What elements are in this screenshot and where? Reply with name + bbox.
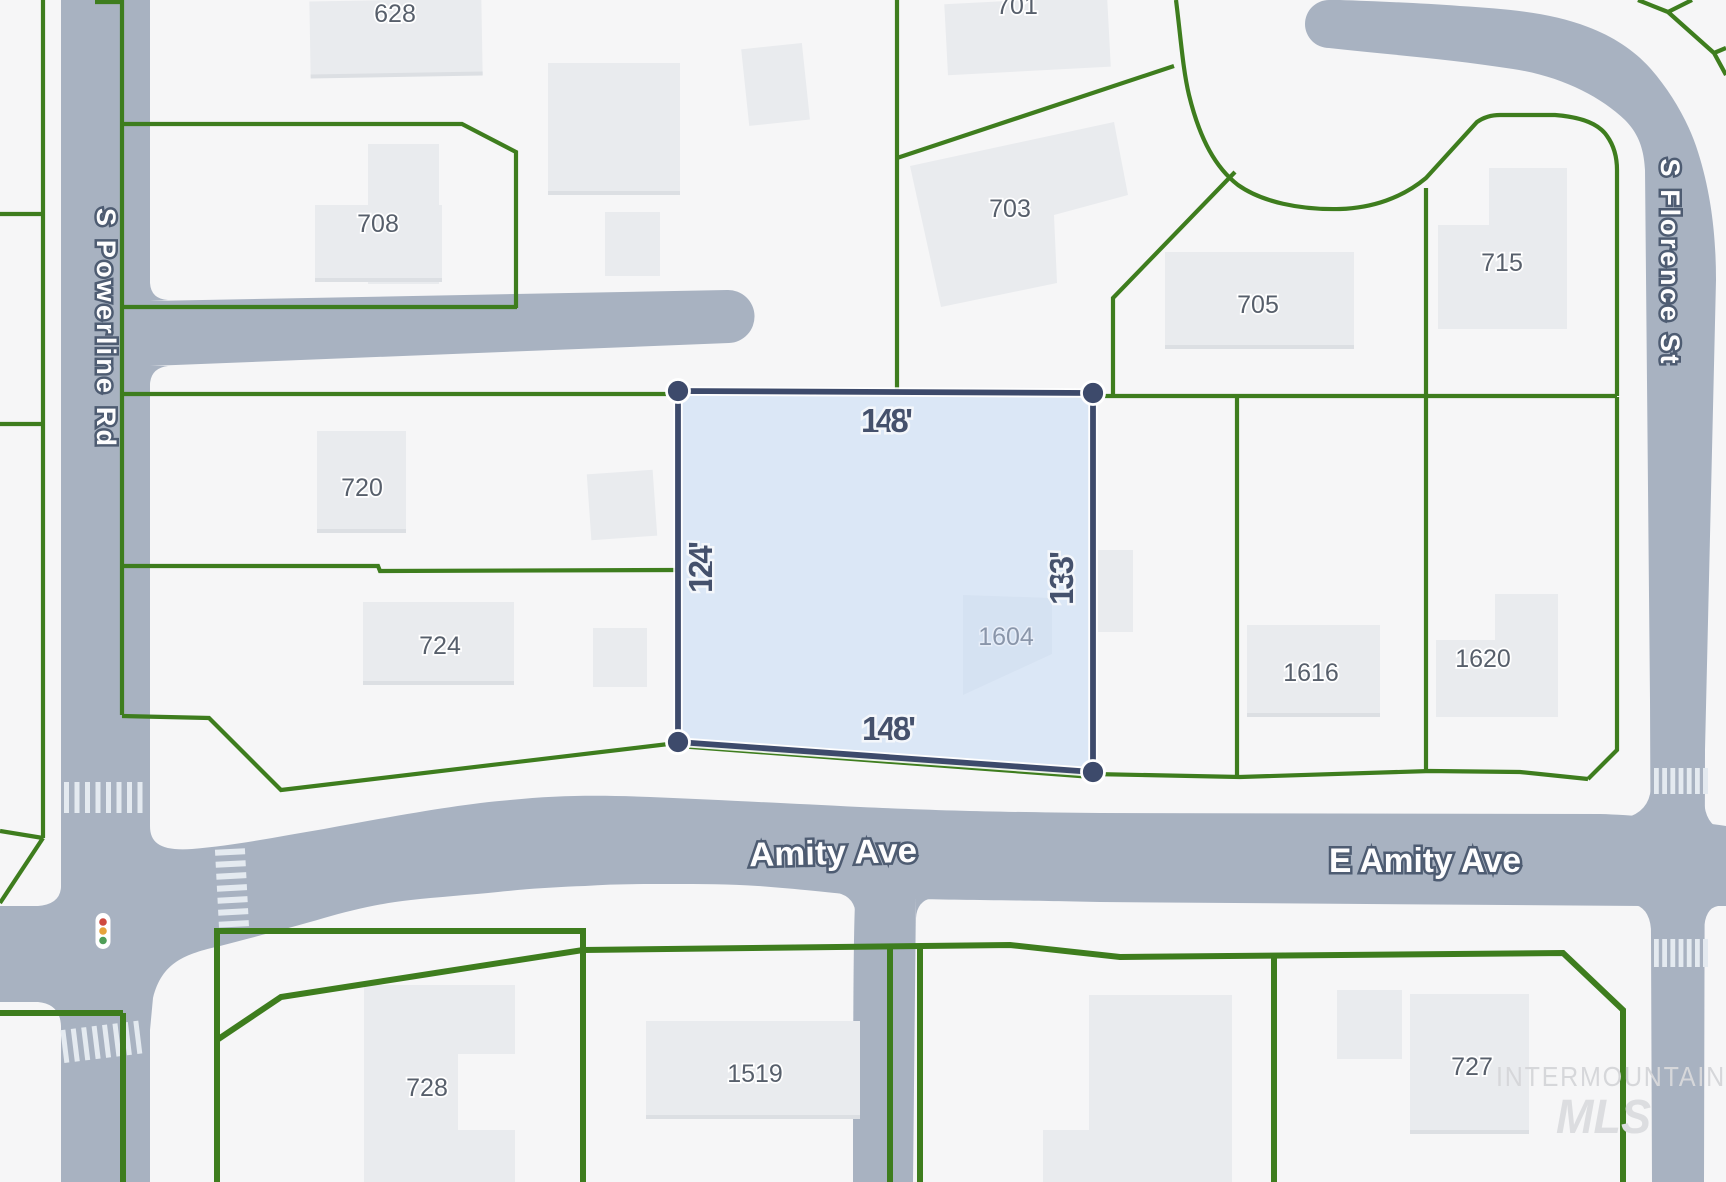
svg-text:Amity Ave: Amity Ave (749, 832, 918, 874)
svg-text:728: 728 (406, 1074, 448, 1102)
svg-text:701: 701 (996, 0, 1038, 20)
svg-text:628: 628 (374, 0, 416, 28)
svg-text:133': 133' (1043, 551, 1080, 605)
svg-text:1604: 1604 (978, 623, 1034, 651)
svg-text:720: 720 (341, 474, 383, 502)
svg-text:E Amity Ave: E Amity Ave (1329, 842, 1521, 880)
svg-text:1519: 1519 (727, 1060, 783, 1088)
svg-text:148': 148' (861, 402, 913, 439)
svg-text:724: 724 (419, 632, 461, 660)
svg-text:148': 148' (862, 710, 916, 747)
svg-text:703: 703 (989, 195, 1031, 223)
svg-text:1616: 1616 (1283, 659, 1339, 687)
svg-text:S Powerline Rd: S Powerline Rd (91, 208, 121, 446)
svg-text:1620: 1620 (1455, 645, 1511, 673)
svg-text:MLS: MLS (1556, 1091, 1651, 1144)
svg-text:705: 705 (1237, 291, 1279, 319)
svg-text:727: 727 (1451, 1053, 1493, 1081)
svg-text:INTERMOUNTAIN: INTERMOUNTAIN (1496, 1061, 1726, 1092)
svg-text:124': 124' (682, 541, 719, 593)
svg-text:708: 708 (357, 210, 399, 238)
svg-text:715: 715 (1481, 249, 1523, 277)
